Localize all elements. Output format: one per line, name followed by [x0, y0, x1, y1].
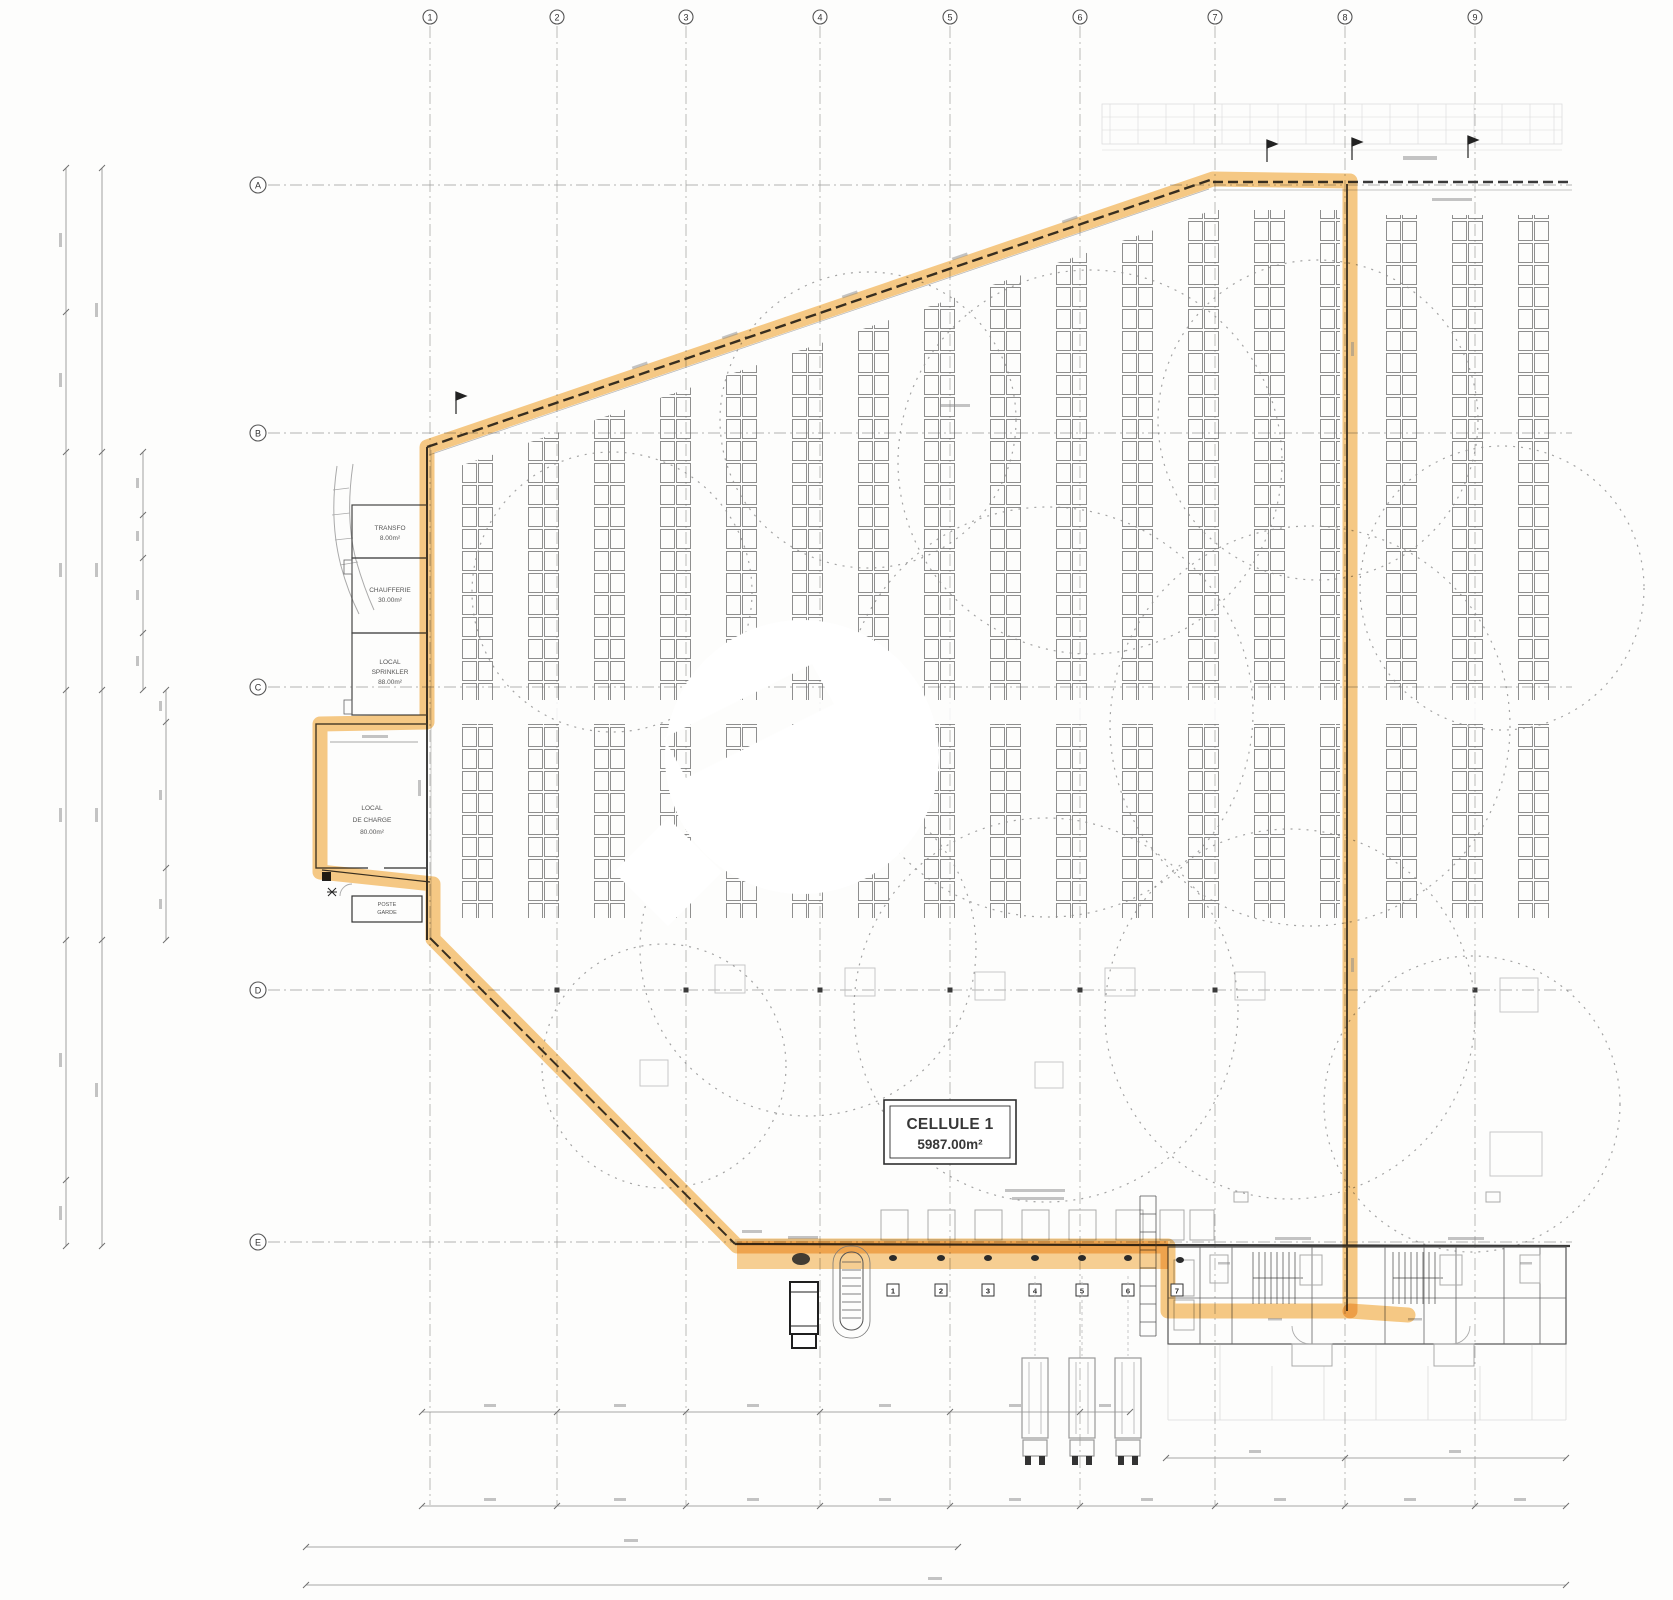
- stairs: [1253, 1252, 1303, 1304]
- svg-text:30.00m²: 30.00m²: [378, 597, 403, 604]
- room-poste-garde-label: POSTE: [378, 902, 397, 908]
- cell-title: CELLULE 1: [906, 1116, 993, 1133]
- cell-area: 5987.00m²: [917, 1137, 983, 1152]
- svg-text:SPRINKLER: SPRINKLER: [372, 669, 409, 676]
- dock-number: 3: [986, 1287, 990, 1296]
- roof-vent-squares: [640, 965, 1542, 1176]
- grid-col-label: 3: [683, 13, 688, 23]
- annex-local-charge: LOCAL DE CHARGE 80.00m²: [316, 724, 427, 870]
- dock-number: 1: [891, 1287, 895, 1296]
- grid-col-label: 5: [947, 13, 952, 23]
- dock-shelter: [792, 1253, 810, 1265]
- cell-label-box: CELLULE 1 5987.00m²: [884, 1100, 1016, 1164]
- grid-row-label: D: [255, 986, 262, 996]
- flag-icon: [456, 392, 466, 414]
- room-chaufferie-label: CHAUFFERIE: [369, 587, 411, 594]
- technical-rooms: TRANSFO 8.00m² CHAUFFERIE 30.00m² LOCAL …: [332, 464, 427, 715]
- grid-row-label: C: [255, 683, 262, 693]
- grid-col-label: 7: [1212, 13, 1217, 23]
- flag-icon: [1468, 136, 1478, 158]
- room-local-charge-label: LOCAL: [361, 805, 383, 812]
- floor-plan-page: 1 2 3 4 5 6 7 8 9 A B C D E: [0, 0, 1673, 1600]
- truck: [1069, 1358, 1095, 1465]
- svg-text:GARDE: GARDE: [377, 910, 397, 916]
- top-right-faint-band: [1102, 104, 1562, 150]
- svg-text:8.00m²: 8.00m²: [380, 535, 401, 542]
- grid-row-label: A: [255, 181, 261, 191]
- grid-col-label: 2: [554, 13, 559, 23]
- grid-col-label: 9: [1472, 13, 1477, 23]
- room-poste-garde: [352, 896, 422, 922]
- truck-at-dock: [790, 1282, 818, 1348]
- dock-fixtures: 1 2 3 4 5 6 7: [790, 1246, 1184, 1465]
- flag-icon: [1352, 138, 1362, 160]
- svg-text:88.00m²: 88.00m²: [378, 679, 403, 686]
- grid-col-label: 6: [1077, 13, 1082, 23]
- room-sprinkler-label: LOCAL: [379, 659, 401, 666]
- dock-number: 2: [939, 1287, 943, 1296]
- grid-row-label: B: [255, 429, 261, 439]
- grid-col-label: 1: [427, 13, 432, 23]
- grid-col-label: 8: [1342, 13, 1347, 23]
- svg-text:80.00m²: 80.00m²: [360, 829, 385, 836]
- room-chaufferie: [352, 558, 427, 633]
- floor-plan-drawing: 1 2 3 4 5 6 7 8 9 A B C D E: [0, 0, 1673, 1600]
- svg-text:DE CHARGE: DE CHARGE: [353, 817, 392, 824]
- waiting-trucks: [1022, 1276, 1141, 1465]
- grid-row-label: E: [255, 1238, 261, 1248]
- truck: [1022, 1358, 1048, 1465]
- flag-icon: [1267, 140, 1277, 162]
- grid-col-label: 4: [817, 13, 822, 23]
- exit-symbol: [327, 888, 337, 896]
- dock-number: 7: [1175, 1287, 1179, 1296]
- truck: [1115, 1358, 1141, 1465]
- stairs: [1393, 1252, 1443, 1304]
- racking: [446, 210, 1562, 918]
- room-local-charge: [316, 724, 427, 868]
- room-transfo-label: TRANSFO: [374, 525, 405, 532]
